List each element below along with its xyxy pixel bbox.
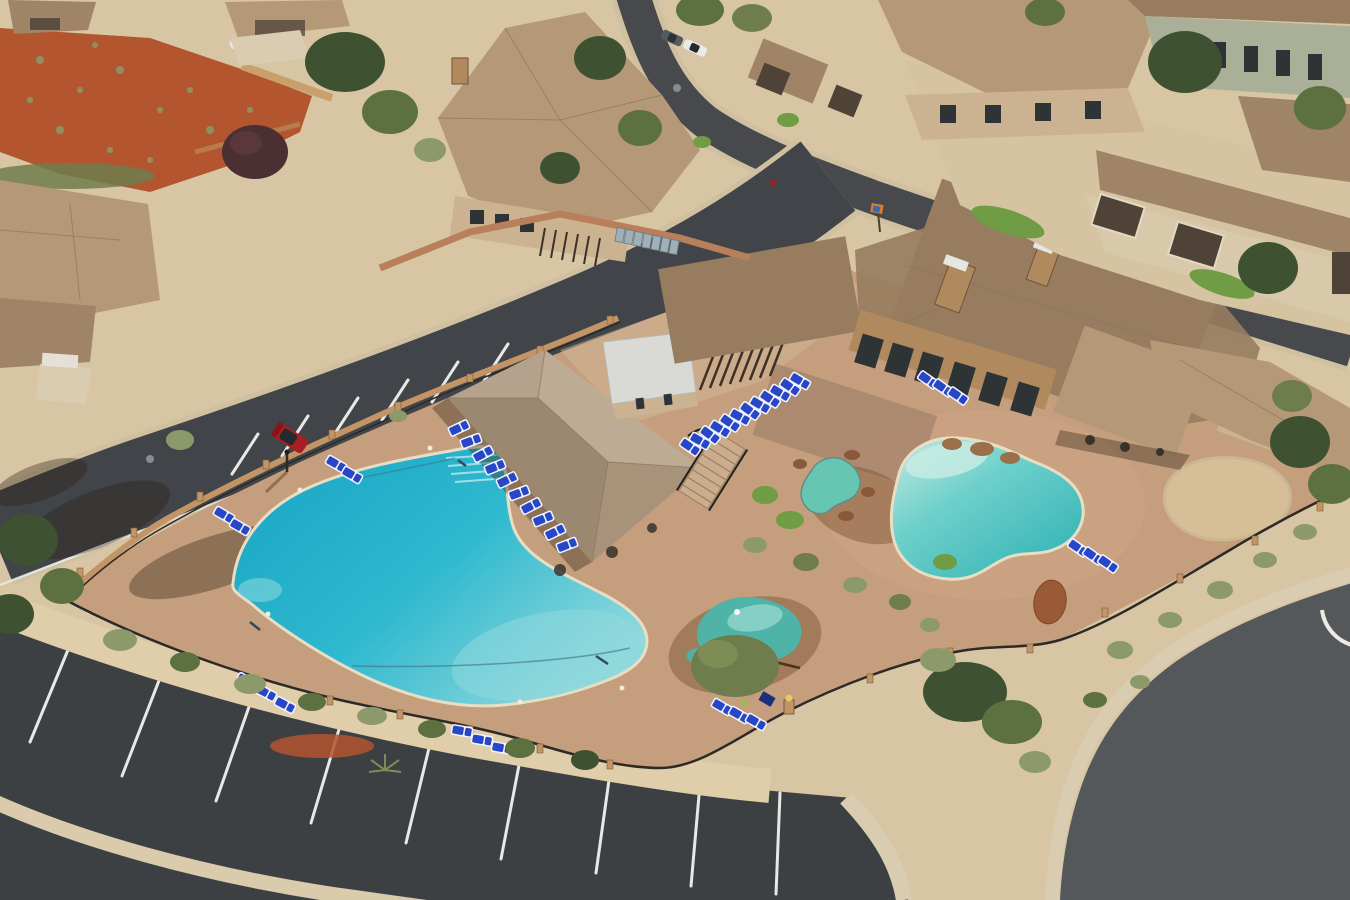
red-object [770,180,776,186]
pool-toy [742,700,748,706]
aerial-photo-stage: Oblique aerial view of a southwest deser… [0,0,1350,900]
chimney [452,58,468,84]
driveway-2 [36,364,92,404]
water-spray [734,609,740,615]
garage-door-3 [1332,252,1350,294]
house-top-left-corner [8,0,96,34]
aerial-photograph: Oblique aerial view of a southwest deser… [0,0,1350,900]
red-dirt-patch [270,734,374,758]
sand-play-area [1164,458,1290,540]
garage-door-white [42,353,79,368]
aerial-photo-svg [0,0,1350,900]
